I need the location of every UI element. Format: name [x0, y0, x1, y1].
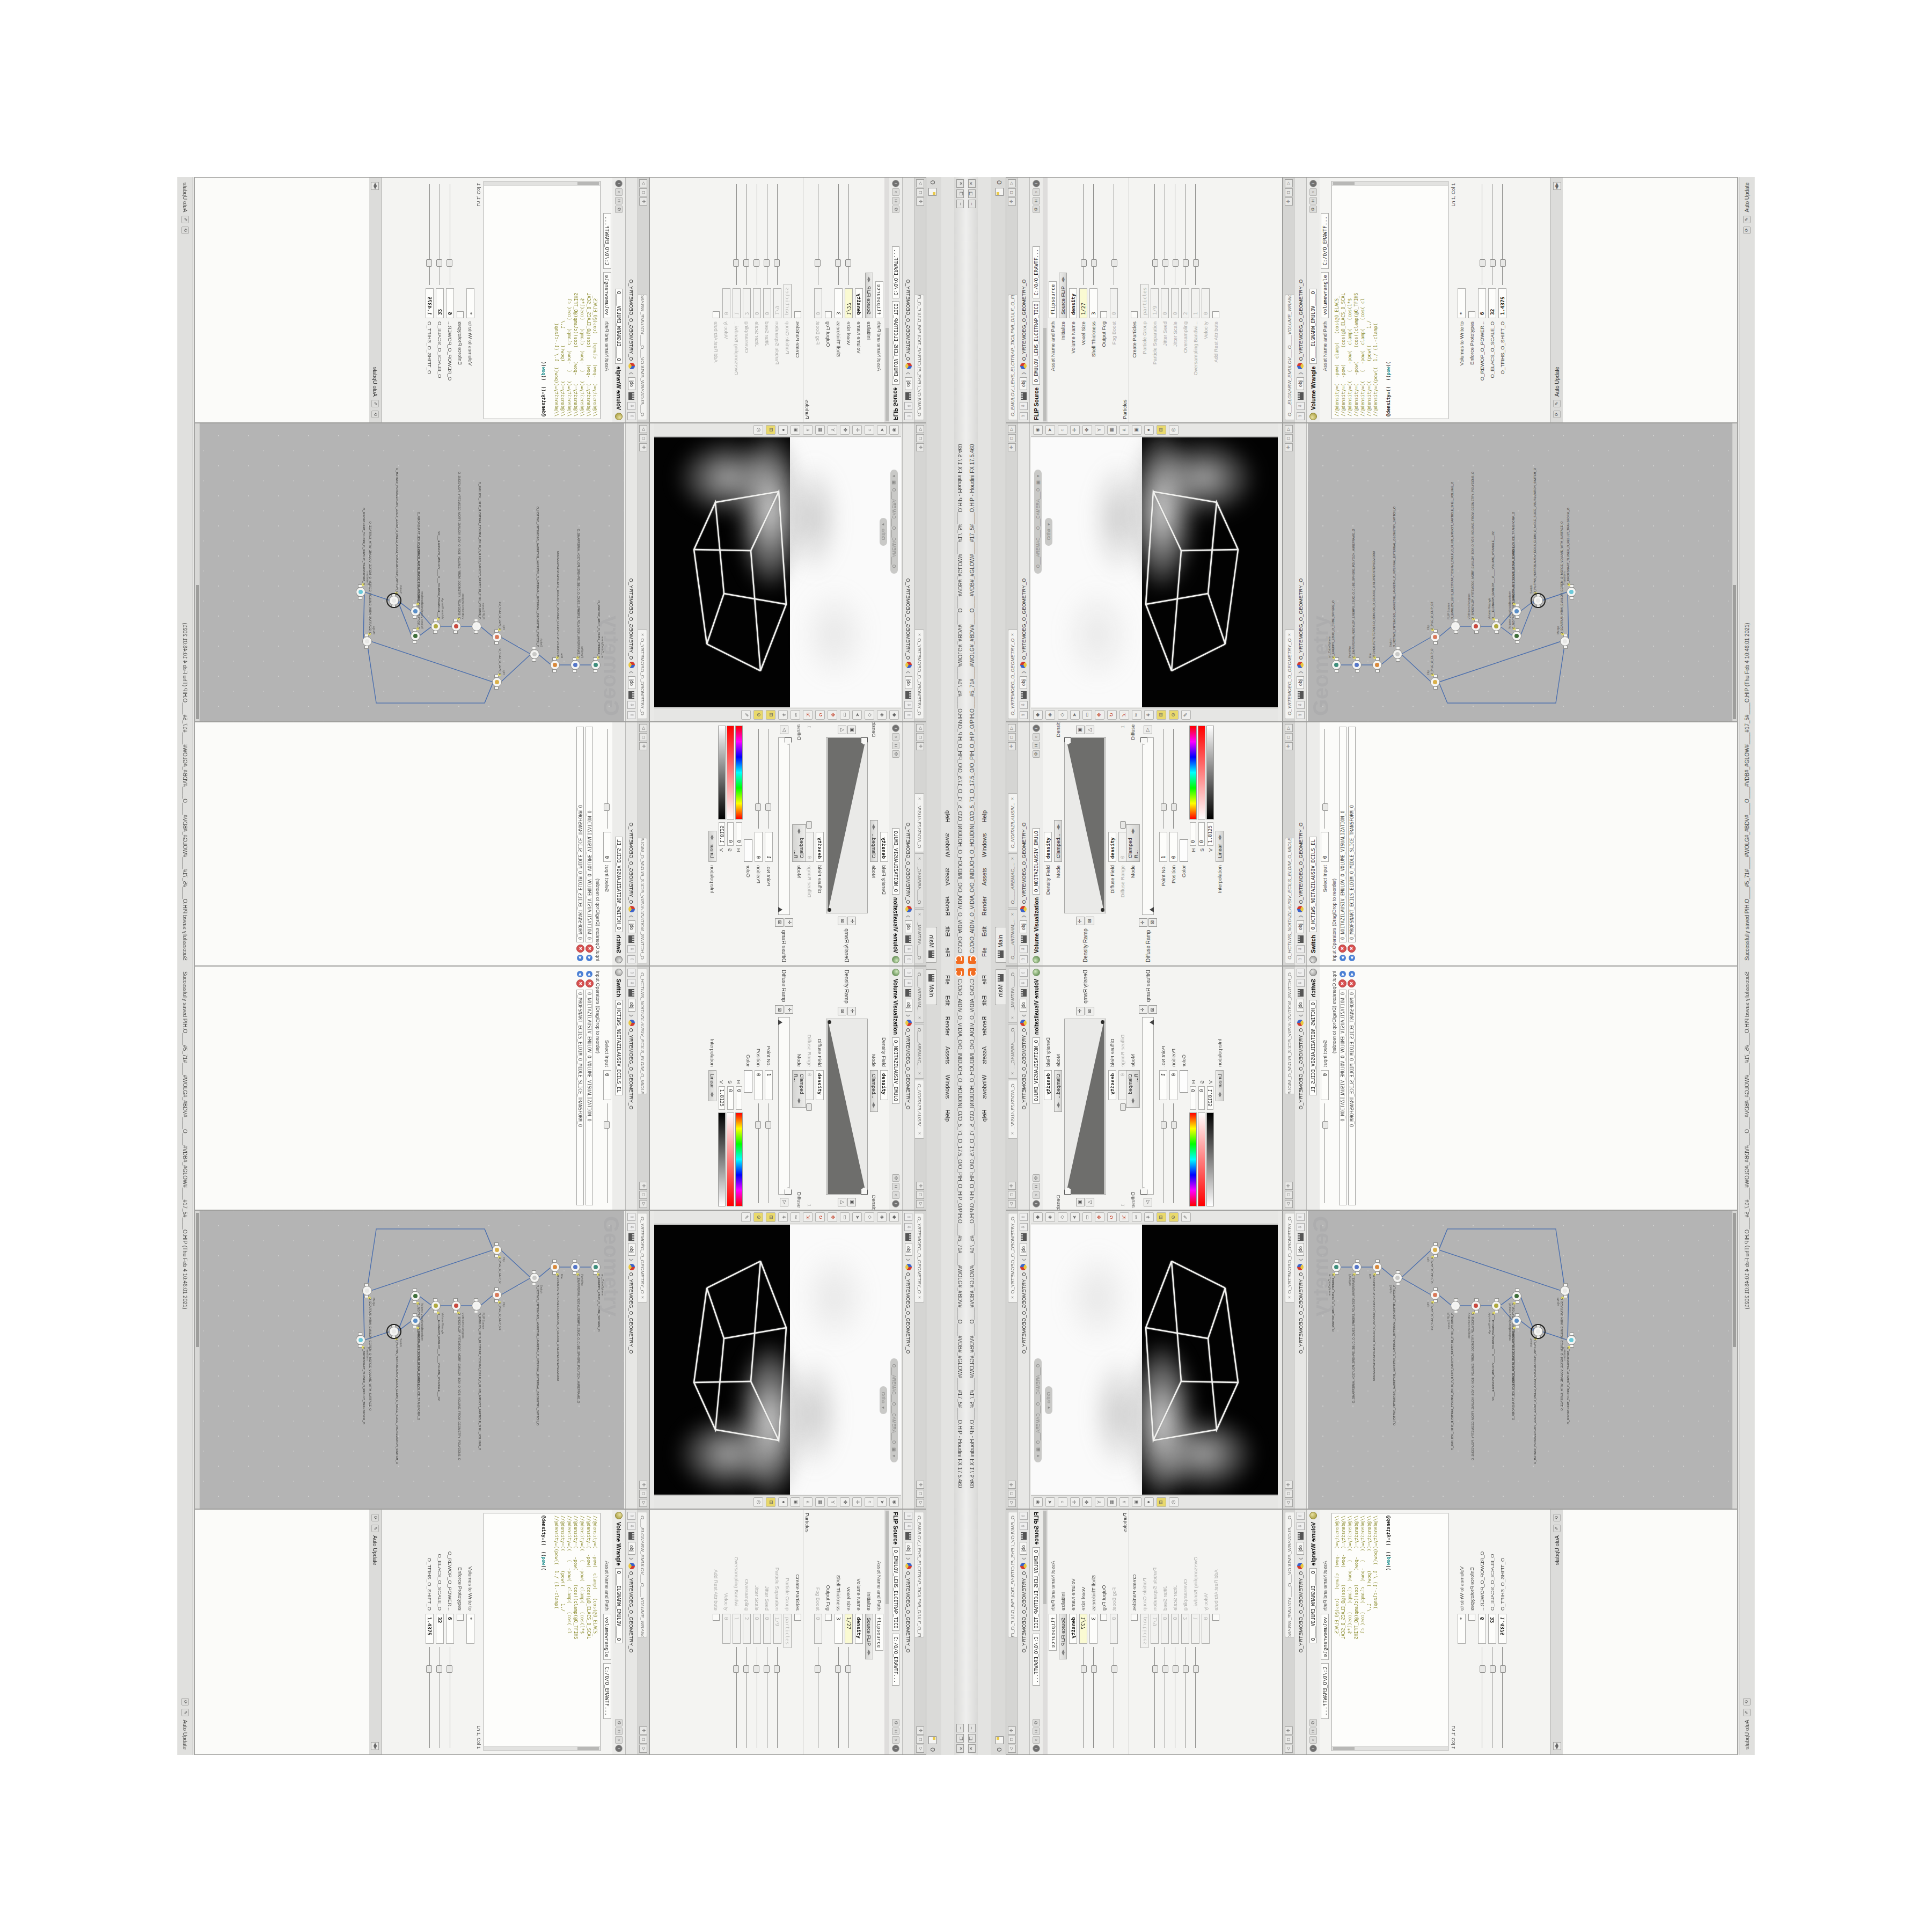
volvis-pane-tab-0[interactable]: O____ARTNAM_...✕ [915, 909, 924, 963]
network-node-clip[interactable]: ClipO_PILC_O_CLIP_O [1430, 677, 1440, 687]
wrangle-slider-2[interactable] [450, 184, 450, 285]
ramp-delete-icon[interactable]: ⊠ [1086, 917, 1094, 925]
wrangle-slider-4[interactable] [429, 1647, 430, 1748]
gear-icon[interactable]: ⚙ [615, 206, 623, 213]
flip-slider-6[interactable] [818, 184, 818, 285]
flip-field-12[interactable]: 0 [1171, 1614, 1179, 1644]
hsv-value-S[interactable]: 0 [727, 1086, 734, 1110]
breadcrumb-node[interactable]: O_YRTEMOEG_O_GEOMETRY_O [629, 1571, 635, 1653]
hsv-bar-H[interactable] [1189, 726, 1197, 819]
breadcrumb-node[interactable]: O_YRTEMOEG_O_GEOMETRY_O [629, 280, 635, 361]
flip-field-14[interactable]: 1 [1191, 1614, 1199, 1644]
menu-windows[interactable]: Windows [979, 1070, 989, 1104]
gear-icon[interactable]: ⚙ [1309, 206, 1317, 213]
nav-down-icon[interactable]: ⇩ [628, 402, 636, 410]
vex-code-editor[interactable]: //@density=( -pow( clamp( (cos(@O_ELACS_… [1331, 1513, 1448, 1751]
slider-thumb-icon[interactable] [1490, 1665, 1496, 1673]
network-node-clip[interactable]: ClipO_PILC_O_CLIP_O [492, 1245, 502, 1255]
flip-field-15[interactable]: 0 [722, 1614, 730, 1644]
nav-down-icon[interactable]: ⇩ [905, 402, 913, 410]
breadcrumb-root[interactable]: obj [905, 920, 912, 933]
hsv-bar-V[interactable] [718, 1113, 726, 1206]
help-H-icon[interactable]: H [892, 197, 899, 204]
close-icon[interactable]: ✕ [1011, 1072, 1015, 1075]
flip-slider-14[interactable] [1195, 184, 1196, 285]
nav-down-icon[interactable]: ⇩ [628, 979, 636, 987]
nav-down-icon[interactable]: ⇩ [905, 1522, 913, 1530]
wrangle-field-0[interactable]: * [1458, 288, 1466, 318]
slider-thumb-icon[interactable] [1183, 1665, 1189, 1673]
flip-slider-3[interactable] [848, 1647, 849, 1748]
ramp-delete-icon[interactable]: ⊠ [1086, 1007, 1094, 1015]
nav-down-icon[interactable]: ⇩ [1297, 979, 1305, 987]
nav-down-icon[interactable]: ⇩ [1297, 1223, 1305, 1231]
close-icon[interactable]: ✕ [917, 857, 921, 860]
flip-pane-tab[interactable]: O_EMULOV_LEHS_ELCITRAP_TICILPMI_DIULF_O_… [915, 1512, 924, 1637]
pane-maximize-icon[interactable]: ◻ [640, 1490, 648, 1498]
rotate-icon[interactable]: ↻ [815, 710, 825, 720]
pane-maximize-icon[interactable]: ◻ [640, 1736, 648, 1744]
slider-thumb-icon[interactable] [765, 803, 771, 811]
reorder-left-icon[interactable]: ◀ [587, 955, 593, 961]
density-ramp-widget[interactable] [826, 737, 868, 913]
network-node-polywire[interactable]: PolyWireO_EMARFERIW_NOGYLOP_EREHPS_EBUC_… [570, 660, 580, 670]
nav-up-icon[interactable]: ⇧ [1297, 969, 1305, 977]
reorder-left-icon[interactable]: ◀ [577, 955, 584, 961]
pane-type-icon[interactable] [629, 989, 635, 997]
hsv-value-S[interactable]: 0 [1198, 1086, 1205, 1110]
flip-field-0[interactable]: flipsource [1049, 1614, 1057, 1651]
flip-group-7[interactable]: Particles [1120, 1510, 1129, 1754]
slider-thumb-icon[interactable] [753, 259, 759, 267]
brush-icon[interactable]: ✎ [1181, 1212, 1191, 1222]
asset-name-field[interactable]: volumewrangle [1321, 272, 1329, 318]
breadcrumb-node[interactable]: O_YRTEMOEG_O_GEOMETRY_O [1298, 1571, 1304, 1653]
update-mode-arrows-icon[interactable]: ◀▶ [1553, 1742, 1561, 1750]
help-H-icon[interactable]: H [615, 197, 623, 204]
pane-type-icon[interactable] [629, 1233, 635, 1241]
close-icon[interactable]: ✕ [917, 1072, 921, 1075]
wrangle-field-2[interactable]: 6 [1478, 288, 1486, 318]
flip-h-scrollbar[interactable] [884, 1510, 889, 1754]
restore-button[interactable]: ❐ [968, 189, 976, 198]
wrangle-slider-4[interactable] [1502, 1647, 1503, 1748]
move-tool-icon[interactable]: ✥ [840, 425, 850, 435]
viewport-canvas[interactable]: O___AREMAC___O___CAMERA___O ▣ ▾ Ortho ▾ [1031, 437, 1278, 707]
flip-field-0[interactable]: flipsource [1049, 281, 1057, 318]
wrangle-pane-tab[interactable]: O___ELGNARW_EMULOV___O____VOLUME_WRANGL.… [1285, 1512, 1294, 1637]
ramp-play-icon[interactable]: ▷ [780, 726, 788, 734]
view-mode-pill[interactable]: Ortho ▾ [1045, 1386, 1052, 1414]
slider-thumb-icon[interactable] [806, 821, 812, 829]
flip-field-0[interactable]: flipsource [875, 281, 883, 318]
flip-field-12[interactable]: 0 [753, 1614, 761, 1644]
vex-code-editor[interactable]: //@density=( -pow( clamp( (cos(@O_ELACS_… [1331, 181, 1448, 419]
nav-up-icon[interactable]: ⇧ [628, 969, 636, 977]
pane-type-icon[interactable] [1021, 1233, 1027, 1241]
switch-input-name-1[interactable]: O_MROFSNART_ECILS_ELDIM_O_MIDLE_SLICE_TR… [577, 990, 584, 1205]
slider-thumb-icon[interactable] [733, 259, 739, 267]
network-node-merge[interactable]: MergeO_ECAFRUS_HTIW_EMULOV_EGREM_O_MERGE… [1560, 1286, 1570, 1296]
switch-pane-tab[interactable]: O_HCTIWS_NOITAZILAUSIV_ECILS_ELDIM_O_MID… [638, 838, 647, 963]
update-mode-arrows-icon[interactable]: ◀▶ [371, 182, 379, 190]
asset-name-field[interactable]: volumewrangle [1321, 1614, 1329, 1660]
shade-flat-icon[interactable]: ◈ [1045, 1212, 1055, 1222]
wrangle-node-tab[interactable]: Volume Wrangle [616, 367, 622, 410]
volvis-c-field-0[interactable]: 1 [765, 1070, 773, 1100]
menu-render[interactable]: Render [943, 891, 953, 920]
flip-slider-13[interactable] [1185, 184, 1185, 285]
remove-input-icon[interactable]: ✖ [1338, 945, 1346, 953]
flip-slider-12[interactable] [1175, 1647, 1175, 1748]
ramp-box-icon[interactable]: ▣ [1076, 1198, 1085, 1206]
gear-icon[interactable]: ⚙ [1033, 1174, 1040, 1182]
close-icon[interactable]: ✕ [917, 1132, 921, 1135]
network-node-transform[interactable]: TransformO_MROFSNART_ECILS_ELDIM_O_MIDLE… [411, 606, 420, 616]
pane-type-icon[interactable] [1021, 392, 1027, 400]
flip-node-tab[interactable]: FLIP Source [892, 387, 899, 420]
desktop-tab-main[interactable]: Main [926, 927, 937, 963]
snap-grid-icon[interactable]: ⊞ [1157, 710, 1166, 720]
network-node-polywire[interactable]: PolyWireO_EMARFERIW_NOGYLOP_EREHPS_EBUC_… [1352, 1262, 1362, 1272]
brush-icon[interactable]: ✎ [371, 400, 379, 407]
pane-menu-icon[interactable]: ▷ [1285, 724, 1293, 732]
slider-thumb-icon[interactable] [815, 259, 821, 267]
help-H-icon[interactable]: H [892, 742, 899, 749]
cook-icon[interactable]: ✎ [181, 216, 189, 223]
volvis-c-slider-0[interactable] [1163, 1103, 1163, 1203]
pane-split-icon[interactable]: ✛ [1008, 1481, 1016, 1489]
slider-thumb-icon[interactable] [1120, 821, 1126, 829]
pane-menu-icon[interactable]: ▷ [1285, 1499, 1293, 1507]
pane-split-icon[interactable]: ✛ [1285, 742, 1293, 750]
network-node-clip[interactable]: ClipO_PILC_O_CLIP_O2 [492, 632, 502, 642]
flip-field-13[interactable]: 2 [743, 1614, 751, 1644]
flip-slider-6[interactable] [1114, 1647, 1114, 1748]
gear-icon[interactable]: ⚙ [892, 206, 899, 213]
pane-maximize-icon[interactable]: ◻ [1008, 1191, 1016, 1199]
snap-grid-icon[interactable]: ⊞ [1157, 1212, 1166, 1222]
slider-thumb-icon[interactable] [1161, 803, 1167, 811]
pane-type-icon[interactable] [1298, 935, 1304, 943]
pane-split-icon[interactable]: ✛ [917, 742, 925, 750]
breadcrumb-root[interactable]: obj [1020, 1542, 1027, 1555]
switch-node-tab[interactable]: Switch [616, 979, 622, 997]
info-icon[interactable]: i [892, 1745, 899, 1752]
network-node-volume-wrangle[interactable]: Volume WrangleO___ELGNARW_EMULOV___O____… [431, 621, 441, 631]
wrangle-field-4[interactable]: 1.4375 [426, 288, 434, 318]
wrangle-slider-2[interactable] [1482, 1647, 1482, 1748]
wrangle-field-2[interactable]: 6 [1478, 1614, 1486, 1644]
move-tool-icon[interactable]: ✥ [840, 1497, 850, 1507]
ramp-end-marker[interactable] [785, 1187, 792, 1195]
volvis-c-color-swatch[interactable] [1180, 839, 1188, 862]
breadcrumb-node[interactable]: O_YRTEMOEG_O_GEOMETRY_O [906, 1571, 912, 1653]
breadcrumb-root[interactable]: obj [1297, 999, 1304, 1012]
pane-type-icon[interactable] [906, 989, 912, 997]
search-icon[interactable]: ○ [892, 1191, 899, 1199]
network-pane-tab[interactable]: O_YRTEMOEG_O_GEOMETRY_O ✕ [1285, 630, 1294, 719]
slider-thumb-icon[interactable] [1500, 259, 1506, 267]
pane-split-icon[interactable]: ✛ [640, 197, 648, 206]
flip-checkbox-16[interactable] [713, 1614, 720, 1621]
pane-maximize-icon[interactable]: ◻ [1285, 434, 1293, 442]
network-node-switch[interactable]: SwitchO_HCTIWS_NOITAZILAUSIV_ECILS_ELDIM… [1533, 596, 1543, 605]
help-H-icon[interactable]: H [615, 1728, 623, 1735]
flip-checkbox-16[interactable] [1212, 311, 1219, 318]
switch-input-name-1[interactable]: O_MROFSNART_ECILS_ELDIM_O_MIDLE_SLICE_TR… [1348, 990, 1356, 1205]
wrangle-field-4[interactable]: 1.4375 [1498, 1614, 1506, 1644]
network-node-transform[interactable]: TransformO_MROFSNART_TLUSER_O_RESULT_TRA… [356, 587, 365, 597]
nav-down-icon[interactable]: ⇩ [1020, 701, 1028, 709]
brush-icon[interactable]: ✎ [1553, 1525, 1561, 1532]
ramp-play-icon[interactable]: ▷ [1144, 1198, 1152, 1206]
slider-thumb-icon[interactable] [755, 1121, 761, 1129]
wrangle-field-4[interactable]: 1.4375 [1498, 288, 1506, 318]
box-select-icon[interactable]: ▭ [840, 1212, 850, 1222]
hsv-value-H[interactable]: 0 [736, 822, 742, 846]
handles-icon[interactable]: ✛ [1070, 1497, 1080, 1507]
volvis-a-field-0[interactable]: density [1044, 1070, 1052, 1100]
pane-split-icon[interactable]: ✛ [1008, 197, 1016, 206]
flip-slider-11[interactable] [1165, 1647, 1165, 1748]
cut-icon[interactable]: ✂ [1132, 710, 1141, 720]
network-node-clip[interactable]: ClipO_PILC_O_CLIP_O2 [1430, 632, 1440, 642]
flip-field-10[interactable]: 1/9 [773, 1614, 781, 1644]
breadcrumb-root[interactable]: obj [628, 1542, 635, 1555]
help-H-icon[interactable]: H [1033, 197, 1040, 204]
nav-down-icon[interactable]: ⇩ [1297, 701, 1305, 709]
flip-node-tab[interactable]: FLIP Source [1033, 1512, 1040, 1545]
viewport-pane-tab[interactable]: O_YRTEMOEG_O_GEOMETRY_O ✕ [915, 1213, 924, 1302]
snap-grid-icon[interactable]: ⊞ [766, 1212, 775, 1222]
slider-thumb-icon[interactable] [1193, 1665, 1199, 1673]
network-node-an-cubesphere[interactable]: an_CubeSphereO_EREHPS_EBUC_O_CUBE_SPHERE… [1331, 660, 1341, 670]
reorder-left-icon[interactable]: ◀ [1340, 955, 1346, 961]
pane-menu-icon[interactable]: ▷ [917, 1200, 925, 1208]
ramp-start-marker[interactable] [1101, 1020, 1104, 1024]
volvis-a-field-0[interactable]: density [880, 832, 888, 862]
render-view-icon[interactable]: ● [778, 425, 788, 435]
search-icon[interactable]: ○ [1033, 188, 1040, 196]
pane-type-icon[interactable] [906, 691, 912, 699]
flip-name-field[interactable]: O_EMULOV_LEHS_ELCITRAP_TICI [1033, 1547, 1040, 1631]
breadcrumb-node[interactable]: O_YRTEMOEG_O_GEOMETRY_O [1021, 1571, 1027, 1653]
hsv-value-H[interactable]: 0 [1190, 1086, 1196, 1110]
breadcrumb-node[interactable]: O_YRTEMOEG_O_GEOMETRY_O [1298, 579, 1304, 660]
menu-help[interactable]: Help [979, 1104, 989, 1126]
reorder-left-icon[interactable]: ◀ [1340, 971, 1346, 977]
ramp-add-icon[interactable]: ✛ [847, 917, 856, 925]
gear-icon[interactable]: ⚙ [892, 1174, 899, 1182]
ramp-box-icon[interactable]: ▣ [1076, 726, 1085, 734]
ramp-delete-icon[interactable]: ⊠ [1148, 1005, 1157, 1014]
translate-icon[interactable]: ✥ [828, 1212, 837, 1222]
info-icon[interactable]: i [892, 724, 899, 732]
slider-thumb-icon[interactable] [774, 1665, 780, 1673]
volvis-c-field-0[interactable]: 1 [1159, 832, 1167, 862]
close-icon[interactable]: ✕ [917, 1016, 921, 1019]
volvis-d-dropdown-0[interactable]: Linear◀▶ [1216, 831, 1224, 862]
pane-split-icon[interactable]: ✛ [1285, 1182, 1293, 1190]
flip-slider-3[interactable] [1083, 184, 1084, 285]
flip-slider-12[interactable] [757, 184, 757, 285]
info-icon[interactable]: i [1033, 1200, 1040, 1207]
slider-thumb-icon[interactable] [835, 259, 841, 267]
ramp-delete-icon[interactable]: ⊠ [838, 917, 846, 925]
volvis-c-field-1[interactable]: 0 [1169, 832, 1177, 862]
slider-thumb-icon[interactable] [1081, 1665, 1087, 1673]
slider-thumb-icon[interactable] [604, 1121, 610, 1129]
flip-field-4[interactable]: 3 [835, 288, 843, 318]
flip-field-6[interactable]: 0 [1110, 1614, 1118, 1644]
ramp-end-marker[interactable] [1140, 1187, 1147, 1195]
volvis-c-slider-1[interactable] [758, 729, 759, 829]
cook-icon[interactable]: ✎ [181, 1709, 189, 1716]
menu-render[interactable]: Render [979, 1012, 989, 1041]
breadcrumb-root[interactable]: obj [1297, 676, 1304, 689]
nav-down-icon[interactable]: ⇩ [1297, 402, 1305, 410]
cut-icon[interactable]: ✂ [791, 710, 800, 720]
volvis-c-field-0[interactable]: 1 [765, 832, 773, 862]
network-node-transform[interactable]: TransformO_MROFSNART_TLUSER_O_RESULT_TRA… [1567, 1335, 1576, 1345]
volvis-c-slider-0[interactable] [769, 1103, 769, 1203]
ramp-add-icon[interactable]: ✛ [847, 1007, 856, 1015]
wrangle-node-tab[interactable]: Volume Wrangle [616, 1522, 622, 1565]
volvis-node-tab[interactable]: Volume Visualization [1033, 979, 1040, 1035]
select-arrow-icon[interactable]: ➤ [852, 1212, 862, 1222]
pane-menu-icon[interactable]: ▷ [1285, 1745, 1293, 1753]
nav-up-icon[interactable]: ⇧ [628, 1213, 636, 1221]
breadcrumb-root[interactable]: obj [1020, 999, 1027, 1012]
hsv-bar-S[interactable] [727, 726, 734, 819]
hsv-bar-S[interactable] [1198, 1113, 1205, 1206]
pane-menu-icon[interactable]: ▷ [640, 1745, 648, 1753]
network-node-clip[interactable]: ClipO_PILC_O_CLIP_O2 [1430, 1290, 1440, 1300]
restore-button[interactable]: ❐ [956, 1734, 964, 1743]
slider-thumb-icon[interactable] [1162, 259, 1168, 267]
slider-thumb-icon[interactable] [1193, 259, 1199, 267]
menu-assets[interactable]: Assets [943, 1042, 953, 1069]
flip-slider-11[interactable] [767, 1647, 767, 1748]
network-node-vdb-from-polygons[interactable]: VDB from PolygonsO_SNOGYLOP_YRTEMOEG_MOR… [1471, 1301, 1481, 1311]
pane-split-icon[interactable]: ✛ [1008, 1182, 1016, 1190]
network-node-transform[interactable]: TransformO_MROFSNART_TLUSER_O_RESULT_TRA… [1567, 587, 1576, 597]
pane-maximize-icon[interactable]: ◻ [1285, 188, 1293, 196]
hsv-value-V[interactable]: 1.8125 [719, 1086, 725, 1110]
snapshot-icon[interactable]: ▣ [1132, 425, 1141, 435]
ramp-start-marker[interactable] [828, 908, 831, 912]
flip-slider-11[interactable] [1165, 184, 1165, 285]
slider-thumb-icon[interactable] [1500, 1665, 1506, 1673]
menu-render[interactable]: Render [979, 891, 989, 920]
breadcrumb-node[interactable]: O_YRTEMOEG_O_GEOMETRY_O [1298, 1028, 1304, 1110]
translate-icon[interactable]: ✥ [1095, 1212, 1104, 1222]
eye-icon[interactable]: ◎ [1169, 1497, 1179, 1507]
nav-up-icon[interactable]: ⇧ [905, 711, 913, 719]
volvis-b-dropdown-2[interactable]: Clamped R...◀▶ [793, 824, 807, 862]
wrangle-field-4[interactable]: 1.4375 [426, 1614, 434, 1644]
nav-up-icon[interactable]: ⇧ [1297, 711, 1305, 719]
eye-icon[interactable]: ◎ [753, 1497, 763, 1507]
uv-icon[interactable]: ▦ [815, 425, 825, 435]
volvis-c-color-swatch[interactable] [744, 1070, 753, 1093]
network-node-transform[interactable]: TransformO_MROFSNART_ECILS_ELDIM_O_MIDLE… [1512, 606, 1521, 616]
flip-field-10[interactable]: 1/9 [1151, 1614, 1159, 1644]
breadcrumb-root[interactable]: obj [1297, 1243, 1304, 1256]
pane-type-icon[interactable] [906, 935, 912, 943]
slider-thumb-icon[interactable] [835, 1665, 841, 1673]
switch-field-0[interactable]: 0 [1321, 832, 1329, 862]
pane-maximize-icon[interactable]: ◻ [1008, 1736, 1016, 1744]
volvis-pane-tab-1[interactable]: O____AREMAC_...✕ [915, 1024, 924, 1079]
hsv-bar-V[interactable] [1206, 726, 1214, 819]
menu-edit[interactable]: Edit [943, 991, 953, 1011]
density-ramp-widget[interactable] [826, 1019, 868, 1195]
slider-thumb-icon[interactable] [1091, 259, 1097, 267]
flip-field-3[interactable]: 1/27 [1079, 1614, 1087, 1644]
otl-path-field[interactable]: C:/O/O_ERAWTF... [1321, 1663, 1329, 1719]
network-node-transform[interactable]: TransformO_MROFSNART_TLUSER_O_RESULT_TRA… [356, 1335, 365, 1345]
gear-icon[interactable]: ⚙ [1033, 750, 1040, 758]
flip-field-2[interactable]: density [1069, 1614, 1077, 1644]
volvis-pane-tab-2[interactable]: O_NOITAZILAUSIV...✕ [1008, 1080, 1017, 1139]
render-view-icon[interactable]: ● [1144, 425, 1154, 435]
menu-edit[interactable]: Edit [943, 921, 953, 941]
close-icon[interactable]: ✕ [1011, 1016, 1015, 1019]
layout-grid-icon[interactable] [996, 1736, 1004, 1744]
flip-h-scrollbar[interactable] [884, 178, 889, 422]
wrangle-name-field[interactable]: O____ELGNARW_EMULOV____O [615, 1568, 623, 1643]
layout-grid-icon[interactable] [996, 188, 1004, 196]
slider-thumb-icon[interactable] [774, 259, 780, 267]
abc-icon[interactable]: a [1119, 1497, 1129, 1507]
info-icon[interactable]: i [1033, 1745, 1040, 1752]
breadcrumb-root[interactable]: obj [628, 377, 635, 390]
menu-help[interactable]: Help [943, 806, 953, 828]
nav-up-icon[interactable]: ⇧ [905, 1512, 913, 1520]
switch-name-field[interactable]: O_HCTIWS_NOITAZILAUSIV_ECILS_EL [615, 1000, 623, 1095]
pane-menu-icon[interactable]: ▷ [1008, 1745, 1016, 1753]
pane-maximize-icon[interactable]: ◻ [917, 1490, 925, 1498]
switch-input-name-0[interactable]: O_NOITAZILAUSIV_EMULOV_O_VOLUME_VISUALIZ… [586, 727, 594, 942]
search-icon[interactable]: ○ [1309, 1736, 1317, 1744]
breadcrumb-root[interactable]: obj [1297, 1542, 1304, 1555]
breadcrumb-node[interactable]: O_YRTEMOEG_O_GEOMETRY_O [1021, 823, 1027, 904]
rotate-icon[interactable]: ↻ [1107, 1212, 1117, 1222]
wrangle-checkbox-1[interactable] [1468, 1614, 1475, 1621]
flip-field-14[interactable]: 1 [733, 1614, 741, 1644]
reorder-left-icon[interactable]: ◀ [1349, 955, 1355, 961]
vex-scrollbar[interactable] [1332, 1746, 1448, 1751]
pane-maximize-icon[interactable]: ◻ [1008, 434, 1016, 442]
nav-up-icon[interactable]: ⇧ [1020, 412, 1028, 420]
volvis-b-field-0[interactable]: density [1108, 1070, 1116, 1100]
breadcrumb-node[interactable]: O_YRTEMOEG_O_GEOMETRY_O [906, 823, 912, 904]
flip-field-3[interactable]: 1/27 [845, 1614, 853, 1644]
camera-selector-pill[interactable]: O___AREMAC___O___CAMERA___O ▣ ▾ [1034, 1358, 1042, 1462]
nav-up-icon[interactable]: ⇧ [628, 1512, 636, 1520]
volvis-a-dropdown-1[interactable]: Clamped...◀▶ [870, 1070, 878, 1112]
flip-group-7[interactable]: Particles [1120, 178, 1129, 422]
breadcrumb-root[interactable]: obj [905, 1542, 912, 1555]
snapshot-icon[interactable]: ▣ [791, 425, 800, 435]
minimize-button[interactable]: – [956, 1724, 964, 1732]
slider-thumb-icon[interactable] [1173, 1665, 1179, 1673]
update-mode-arrows-icon[interactable]: ◀▶ [1553, 182, 1561, 190]
info-icon[interactable]: i [615, 180, 623, 187]
flip-field-9[interactable]: particles [1140, 1614, 1148, 1648]
